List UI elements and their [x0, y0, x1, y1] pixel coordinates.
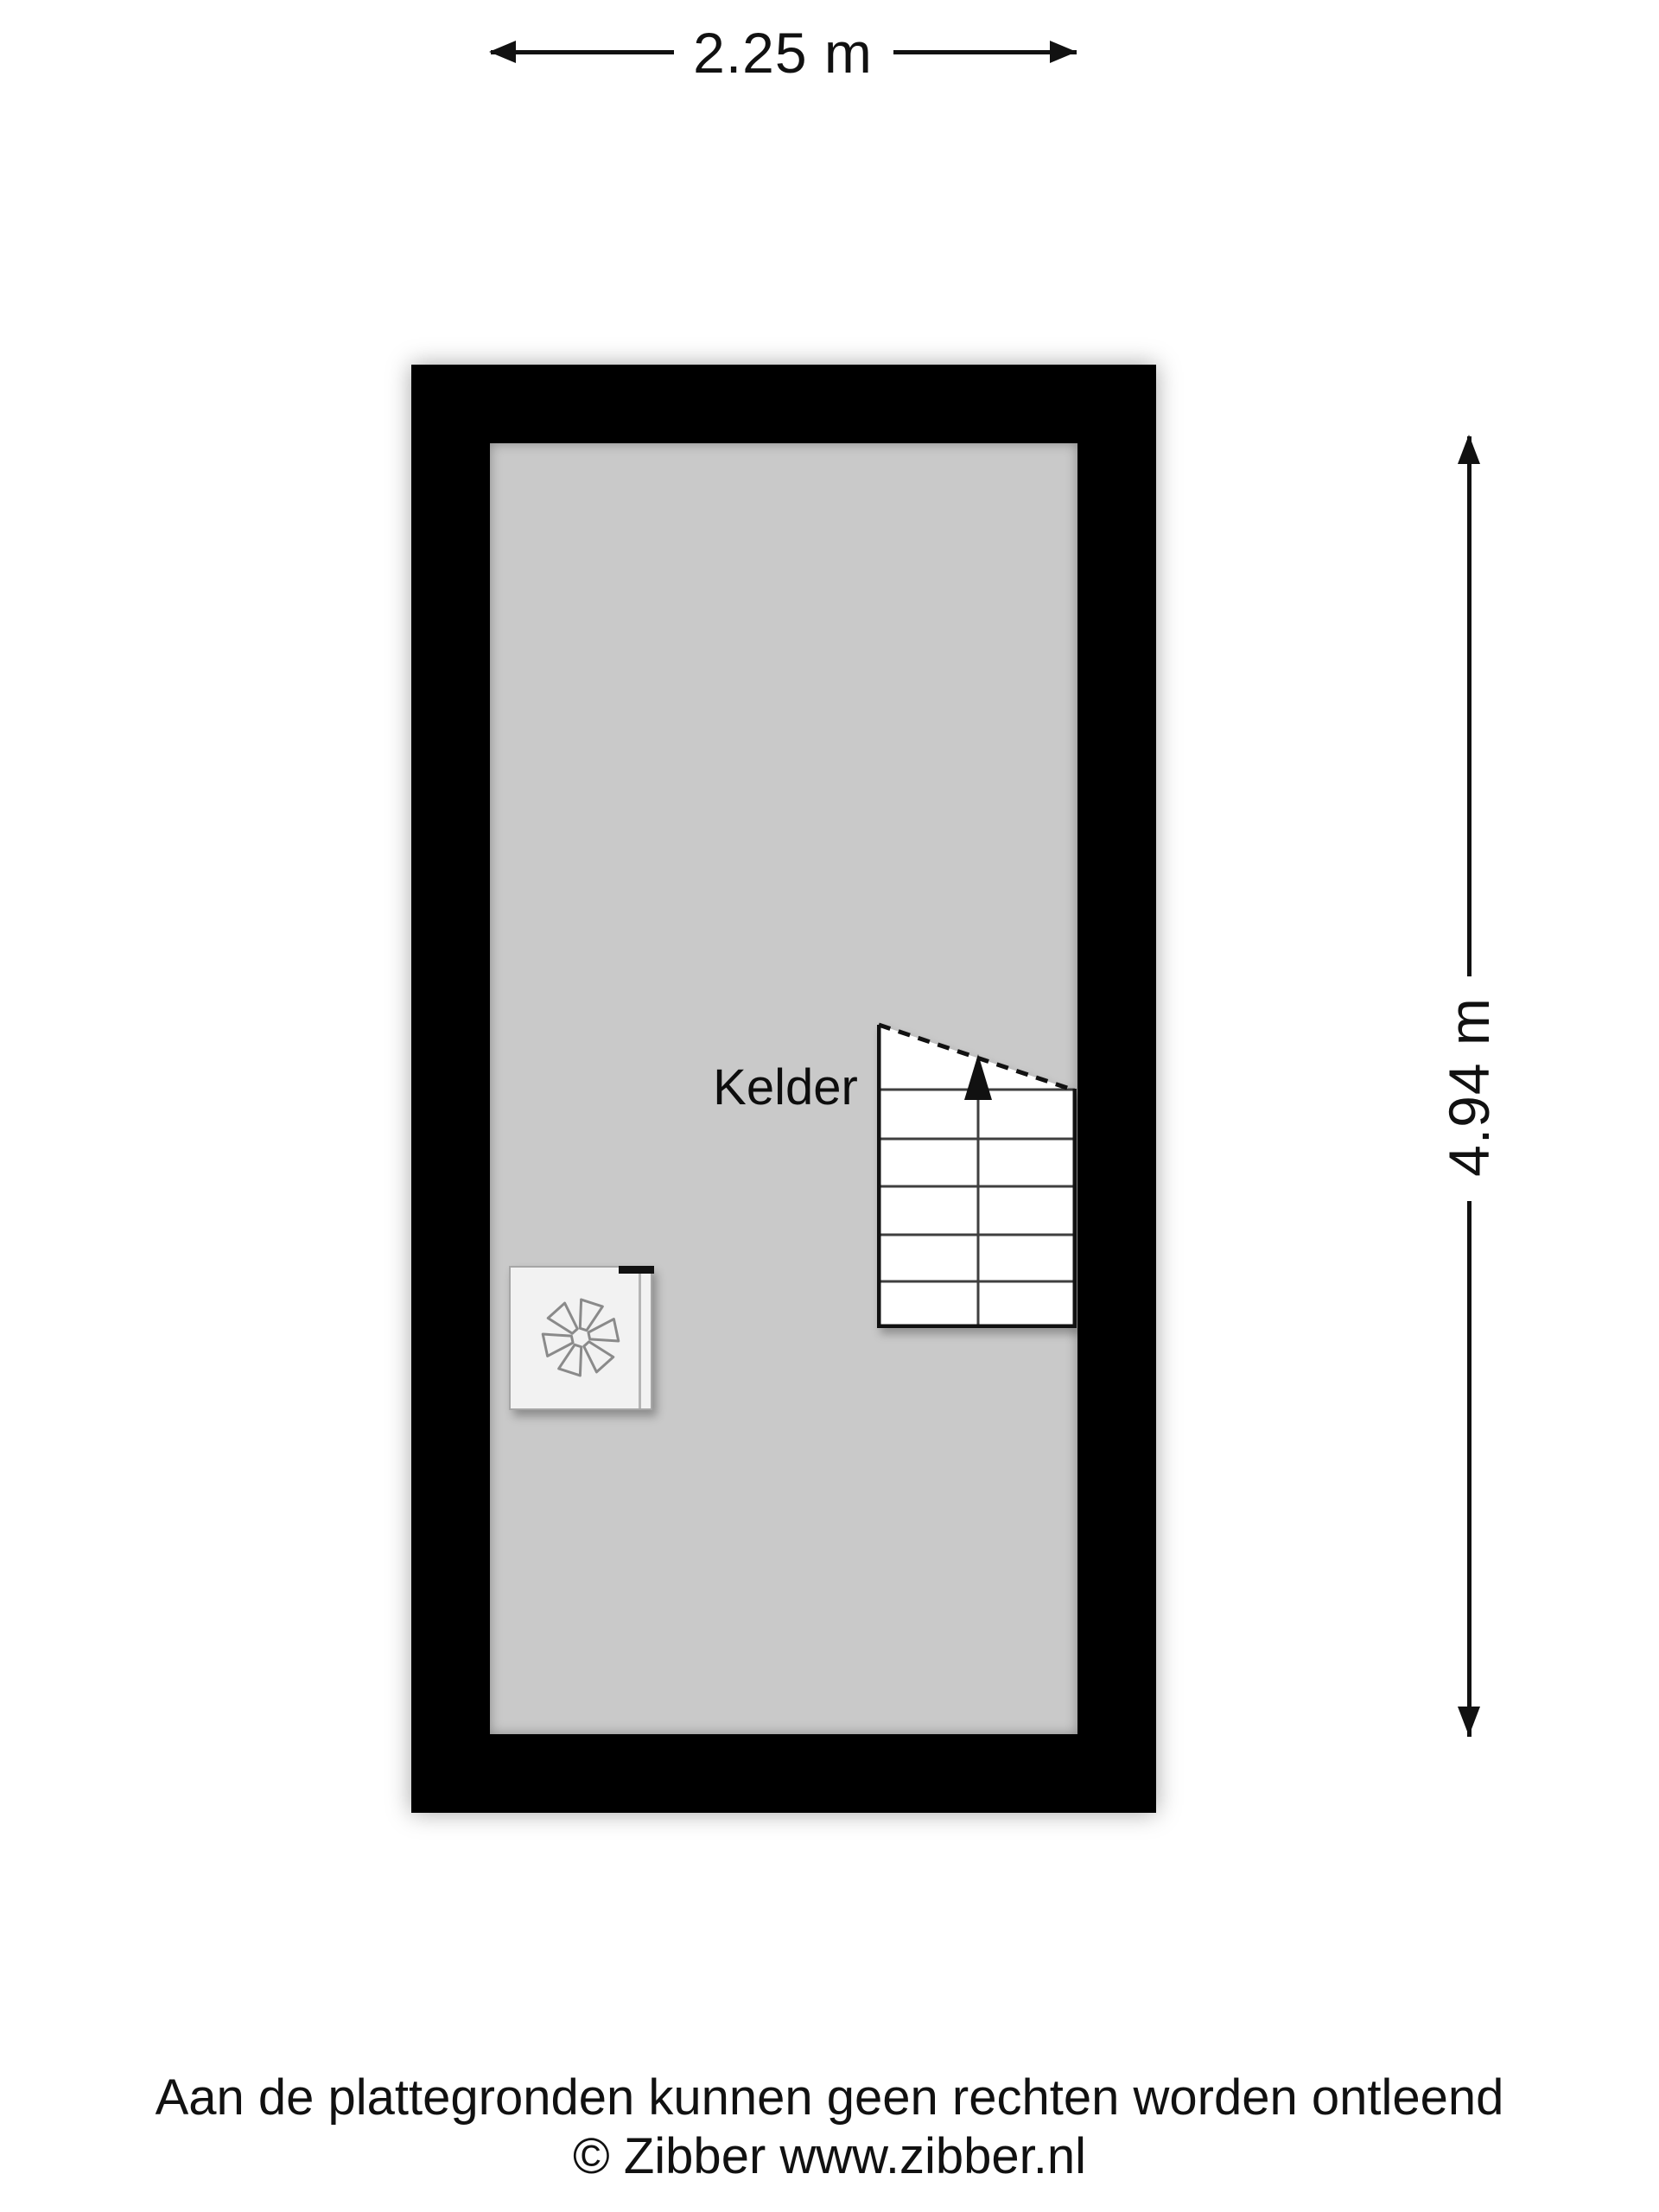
basement-walls: Kelder	[411, 365, 1156, 1813]
height-dimension-label: 4.94 m	[1440, 957, 1497, 1217]
staircase	[877, 1022, 1077, 1328]
basement-room: Kelder	[490, 443, 1077, 1734]
arrow-down-icon	[1458, 1707, 1480, 1736]
copyright-text: © Zibber www.zibber.nl	[0, 2131, 1659, 2183]
fan-icon	[539, 1296, 622, 1379]
arrow-left-icon	[489, 41, 516, 63]
disclaimer-text: Aan de plattegronden kunnen geen rechten…	[0, 2072, 1659, 2124]
ventilation-unit	[509, 1266, 652, 1410]
room-name-label: Kelder	[656, 1058, 915, 1117]
arrow-up-icon	[1458, 435, 1480, 464]
arrow-right-icon	[1050, 41, 1077, 63]
width-dimension-label: 2.25 m	[653, 24, 912, 81]
height-dimension-line-bottom	[1467, 1201, 1471, 1737]
wall-stub-marker	[619, 1266, 654, 1274]
height-dimension-line-top	[1467, 436, 1471, 976]
ventilation-unit-edge-line	[639, 1268, 641, 1408]
width-dimension-line-left	[491, 50, 674, 54]
floorplan-page: 2.25 m 4.94 m Kelder	[0, 0, 1659, 2212]
